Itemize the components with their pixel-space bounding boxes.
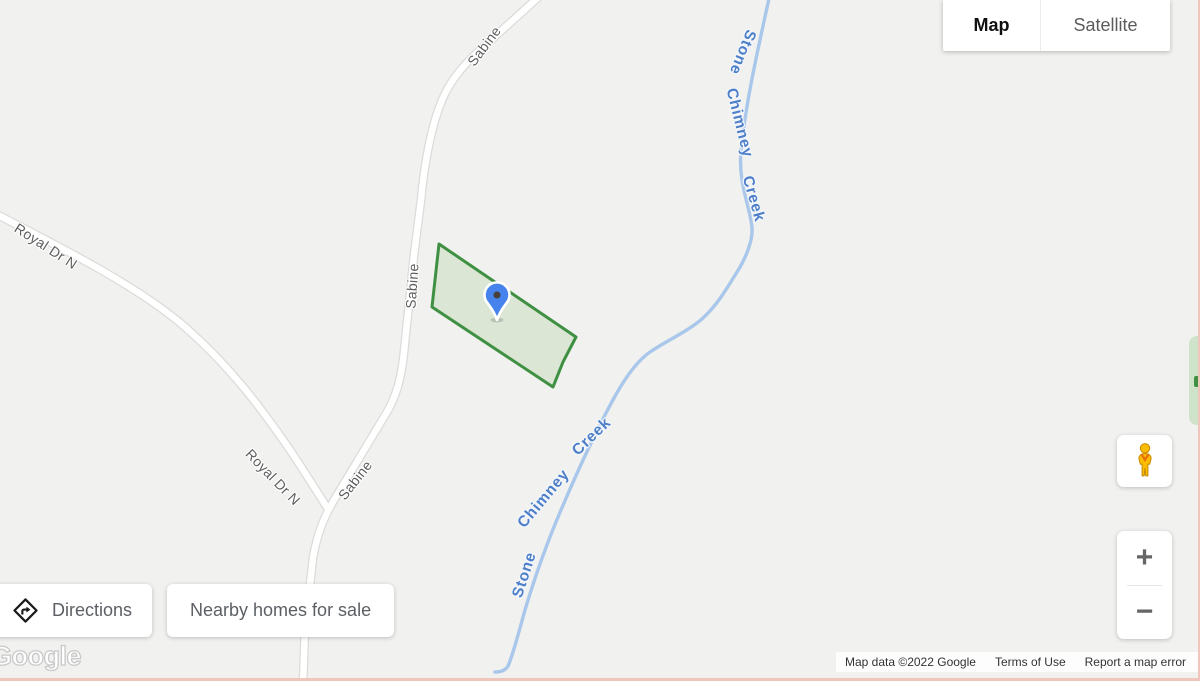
attribution-bar: Map data ©2022 Google Terms of Use Repor… bbox=[836, 652, 1198, 672]
zoom-control: + − bbox=[1117, 531, 1172, 639]
adjacent-parcel-fragment bbox=[1189, 336, 1198, 425]
nearby-homes-button[interactable]: Nearby homes for sale bbox=[167, 584, 394, 637]
map-data-copyright: Map data ©2022 Google bbox=[845, 655, 976, 669]
nearby-homes-button-label: Nearby homes for sale bbox=[190, 600, 371, 621]
map-type-satellite-button[interactable]: Satellite bbox=[1040, 0, 1170, 51]
terms-of-use-link[interactable]: Terms of Use bbox=[995, 655, 1066, 669]
directions-diamond-arrow-icon bbox=[12, 597, 39, 624]
zoom-out-button[interactable]: − bbox=[1117, 586, 1172, 640]
map-type-map-button[interactable]: Map bbox=[943, 0, 1040, 51]
map-background bbox=[0, 0, 1198, 678]
report-map-error-link[interactable]: Report a map error bbox=[1085, 655, 1186, 669]
directions-button[interactable]: Directions bbox=[0, 584, 152, 637]
street-view-pegman-button[interactable] bbox=[1117, 435, 1172, 487]
map-canvas[interactable] bbox=[0, 0, 1198, 678]
directions-button-label: Directions bbox=[52, 600, 132, 621]
minus-icon: − bbox=[1136, 597, 1154, 627]
plus-icon: + bbox=[1136, 543, 1154, 573]
google-logo[interactable]: Google bbox=[0, 641, 81, 672]
google-map-embed: Sabine Royal Dr N Sabine Royal Dr N Sabi… bbox=[0, 0, 1200, 681]
map-type-control: Map Satellite bbox=[943, 0, 1170, 51]
pegman-icon bbox=[1132, 443, 1158, 479]
zoom-in-button[interactable]: + bbox=[1117, 531, 1172, 585]
